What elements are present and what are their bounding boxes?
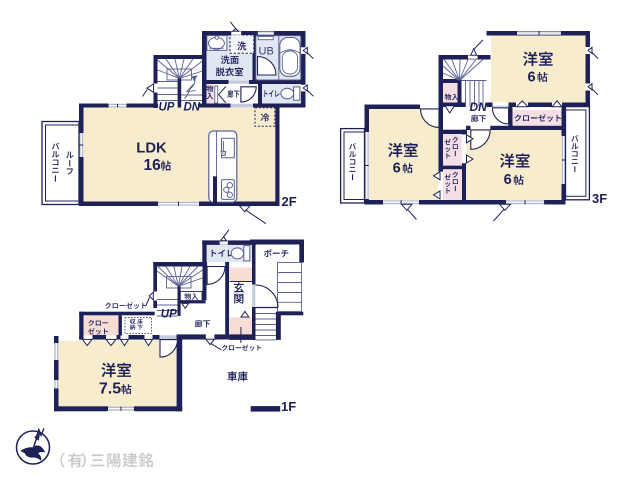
- svg-text:3F: 3F: [592, 191, 607, 206]
- svg-text:UB: UB: [259, 46, 274, 58]
- svg-text:6: 6: [393, 160, 401, 176]
- svg-text:16: 16: [144, 157, 162, 174]
- svg-text:6: 6: [504, 172, 512, 188]
- svg-text:UP: UP: [161, 308, 177, 320]
- svg-text:7.5: 7.5: [99, 380, 121, 397]
- svg-text:LDK: LDK: [136, 141, 167, 157]
- svg-text:1F: 1F: [281, 399, 296, 414]
- svg-text:2F: 2F: [282, 194, 297, 209]
- svg-text:6: 6: [528, 69, 536, 85]
- svg-text:DN: DN: [470, 100, 488, 114]
- svg-text:UP: UP: [159, 101, 175, 113]
- svg-text:DN: DN: [184, 101, 201, 113]
